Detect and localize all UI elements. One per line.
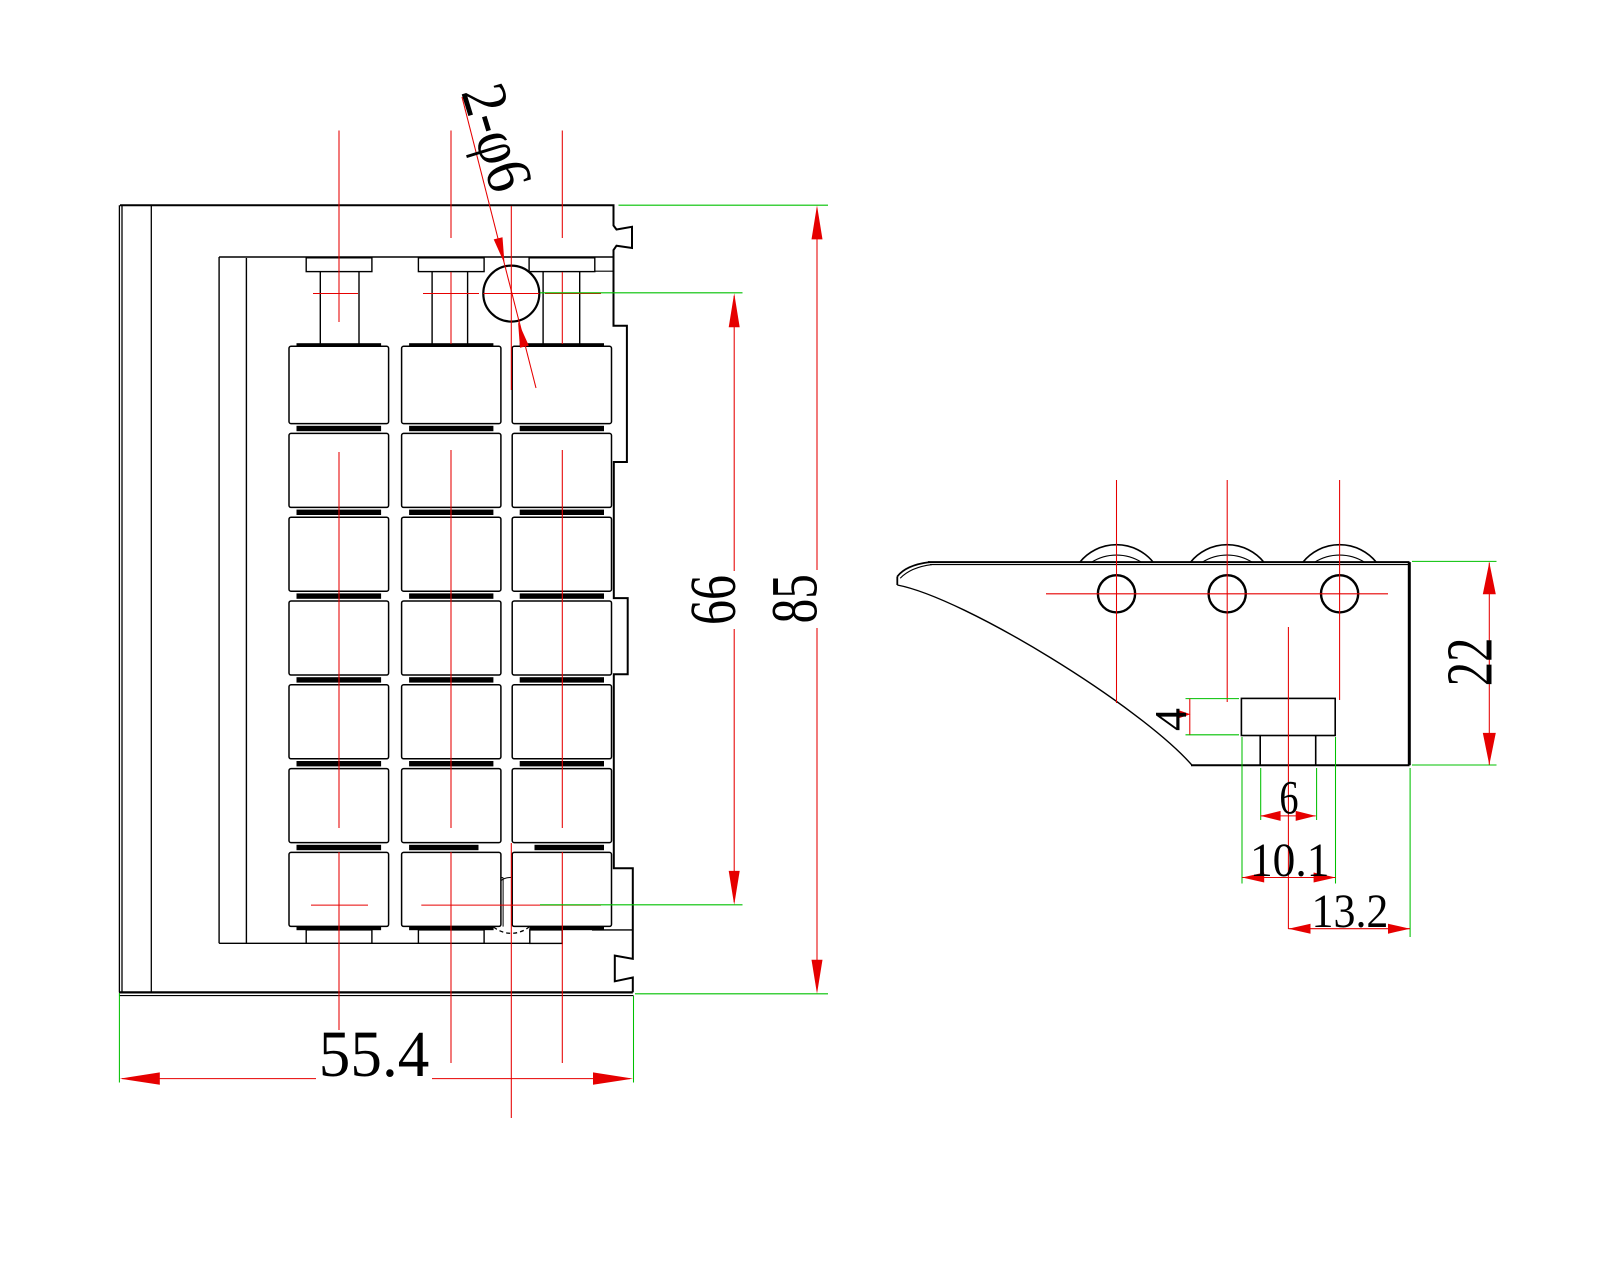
svg-text:10.1: 10.1 [1250, 834, 1329, 887]
svg-text:6: 6 [1279, 772, 1298, 825]
svg-text:13.2: 13.2 [1312, 885, 1389, 938]
svg-text:4: 4 [1145, 708, 1196, 731]
svg-text:55.4: 55.4 [319, 1018, 430, 1091]
svg-text:85: 85 [758, 574, 831, 623]
svg-text:66: 66 [677, 575, 750, 625]
svg-text:22: 22 [1433, 638, 1506, 687]
